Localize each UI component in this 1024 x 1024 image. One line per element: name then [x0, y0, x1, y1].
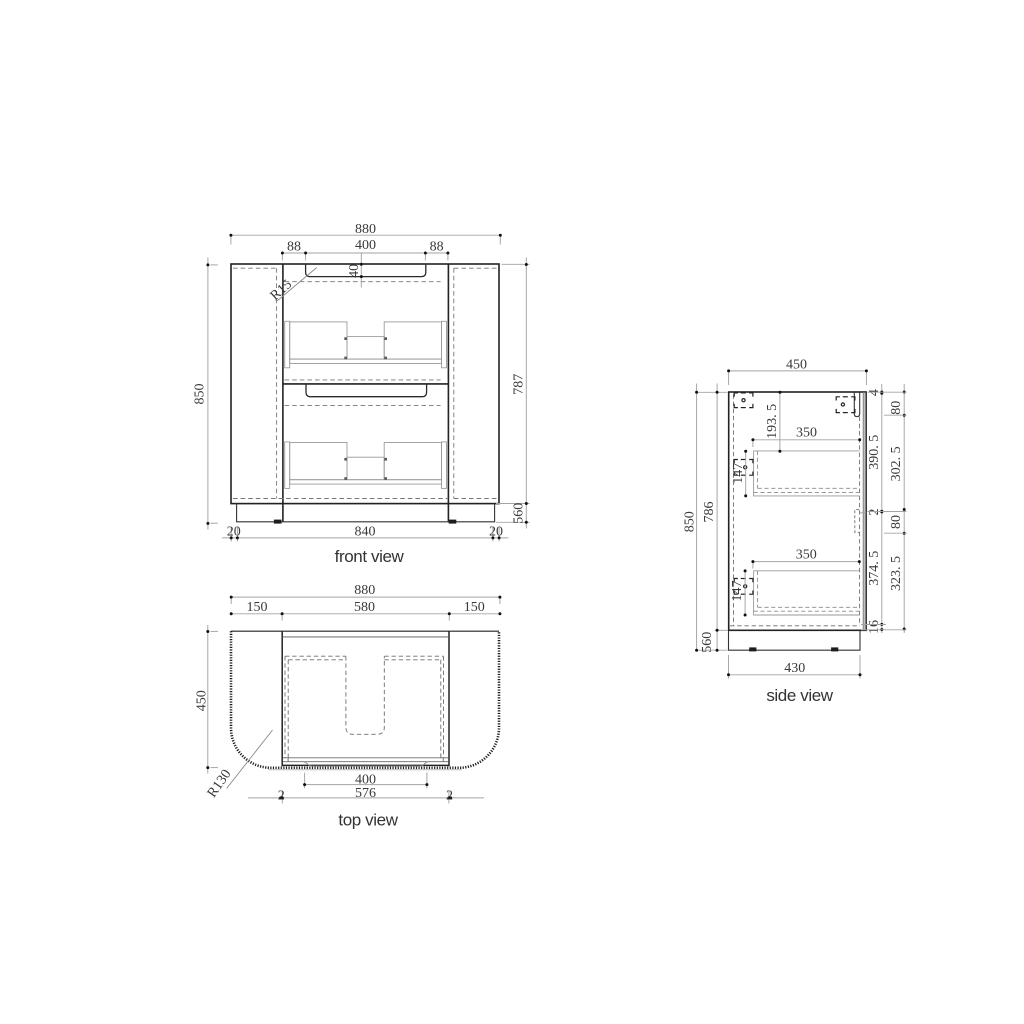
- svg-text:147: 147: [730, 581, 745, 602]
- svg-text:2: 2: [278, 788, 285, 803]
- svg-text:576: 576: [355, 786, 376, 801]
- svg-text:193. 5: 193. 5: [765, 404, 780, 439]
- svg-text:840: 840: [355, 525, 376, 540]
- svg-text:787: 787: [511, 374, 526, 395]
- svg-text:560: 560: [700, 632, 715, 653]
- svg-text:top view: top view: [338, 810, 398, 829]
- svg-text:2: 2: [446, 788, 453, 803]
- svg-text:front view: front view: [335, 547, 405, 566]
- svg-text:880: 880: [354, 583, 375, 598]
- svg-text:16: 16: [867, 620, 882, 634]
- svg-text:850: 850: [683, 511, 698, 532]
- svg-text:side view: side view: [766, 686, 833, 705]
- svg-text:20: 20: [489, 525, 503, 540]
- svg-text:150: 150: [247, 600, 268, 615]
- svg-text:880: 880: [355, 222, 376, 237]
- svg-text:150: 150: [464, 600, 485, 615]
- svg-text:450: 450: [194, 690, 209, 711]
- svg-text:374. 5: 374. 5: [867, 551, 882, 586]
- svg-text:302. 5: 302. 5: [889, 446, 904, 481]
- svg-text:40: 40: [347, 264, 362, 278]
- svg-text:350: 350: [796, 547, 817, 562]
- svg-text:147: 147: [731, 463, 746, 484]
- svg-text:580: 580: [354, 600, 375, 615]
- svg-text:450: 450: [786, 357, 807, 372]
- svg-text:350: 350: [796, 426, 817, 441]
- svg-text:400: 400: [355, 238, 376, 253]
- svg-text:430: 430: [784, 661, 805, 676]
- svg-text:786: 786: [702, 502, 717, 523]
- svg-text:323. 5: 323. 5: [889, 556, 904, 591]
- svg-text:850: 850: [192, 384, 207, 405]
- svg-text:88: 88: [287, 240, 301, 255]
- svg-text:2: 2: [867, 509, 882, 516]
- svg-text:20: 20: [227, 525, 241, 540]
- svg-text:560: 560: [511, 503, 526, 524]
- svg-text:80: 80: [889, 515, 904, 529]
- svg-text:390. 5: 390. 5: [867, 435, 882, 470]
- svg-text:80: 80: [889, 401, 904, 415]
- svg-text:88: 88: [430, 240, 444, 255]
